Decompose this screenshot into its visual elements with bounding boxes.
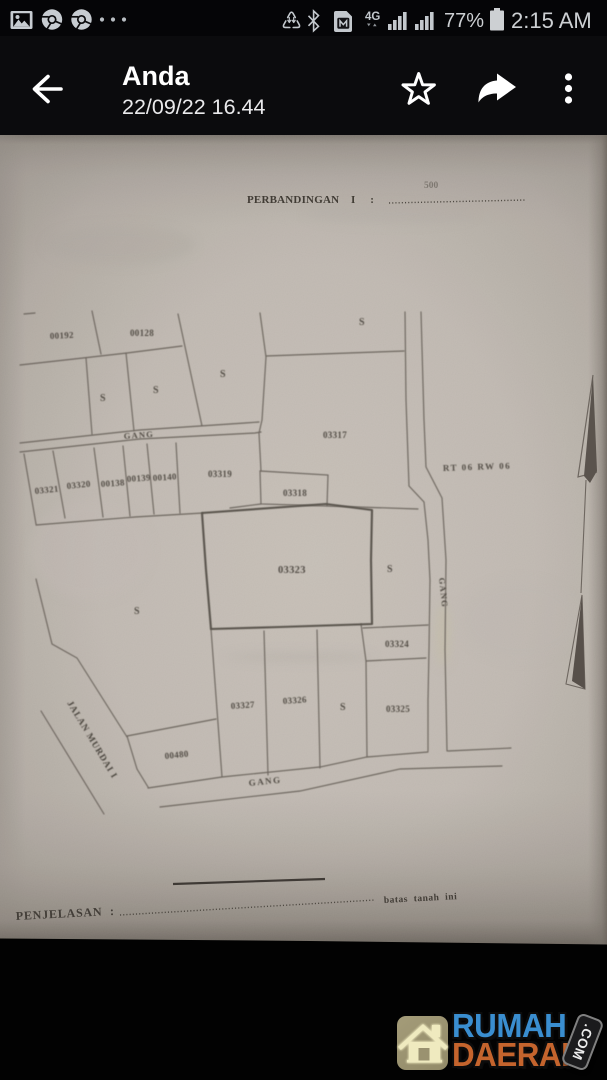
svg-text:03318: 03318 (283, 488, 307, 498)
svg-text:00128: 00128 (130, 328, 154, 338)
svg-text:S: S (100, 393, 106, 404)
svg-text:Anda: Anda (122, 61, 190, 91)
svg-text:GANG: GANG (123, 429, 154, 441)
svg-text:500: 500 (424, 181, 439, 191)
svg-text:00138: 00138 (100, 477, 125, 489)
svg-text:S: S (387, 564, 393, 575)
svg-text:03324: 03324 (385, 639, 409, 649)
svg-text:4G: 4G (365, 11, 380, 23)
svg-text:03319: 03319 (208, 469, 232, 479)
svg-text:PERBANDINGAN I :: PERBANDINGAN I : (247, 194, 374, 206)
svg-text:03317: 03317 (323, 430, 347, 440)
svg-text:00192: 00192 (50, 330, 75, 341)
svg-text:77%: 77% (444, 10, 484, 32)
svg-text:22/09/22 16.44: 22/09/22 16.44 (122, 95, 266, 119)
svg-text:S: S (134, 606, 140, 617)
svg-text:00139: 00139 (126, 472, 151, 484)
svg-text:03327: 03327 (230, 699, 255, 711)
svg-text:03325: 03325 (386, 704, 410, 714)
svg-text:S: S (340, 702, 346, 713)
svg-text:03326: 03326 (282, 694, 307, 706)
svg-text:S: S (220, 369, 226, 380)
svg-text:S: S (359, 317, 365, 328)
svg-text:2:15 AM: 2:15 AM (511, 8, 592, 33)
svg-text:S: S (153, 385, 159, 396)
svg-text:00140: 00140 (152, 471, 177, 483)
svg-text:03323: 03323 (278, 565, 306, 576)
